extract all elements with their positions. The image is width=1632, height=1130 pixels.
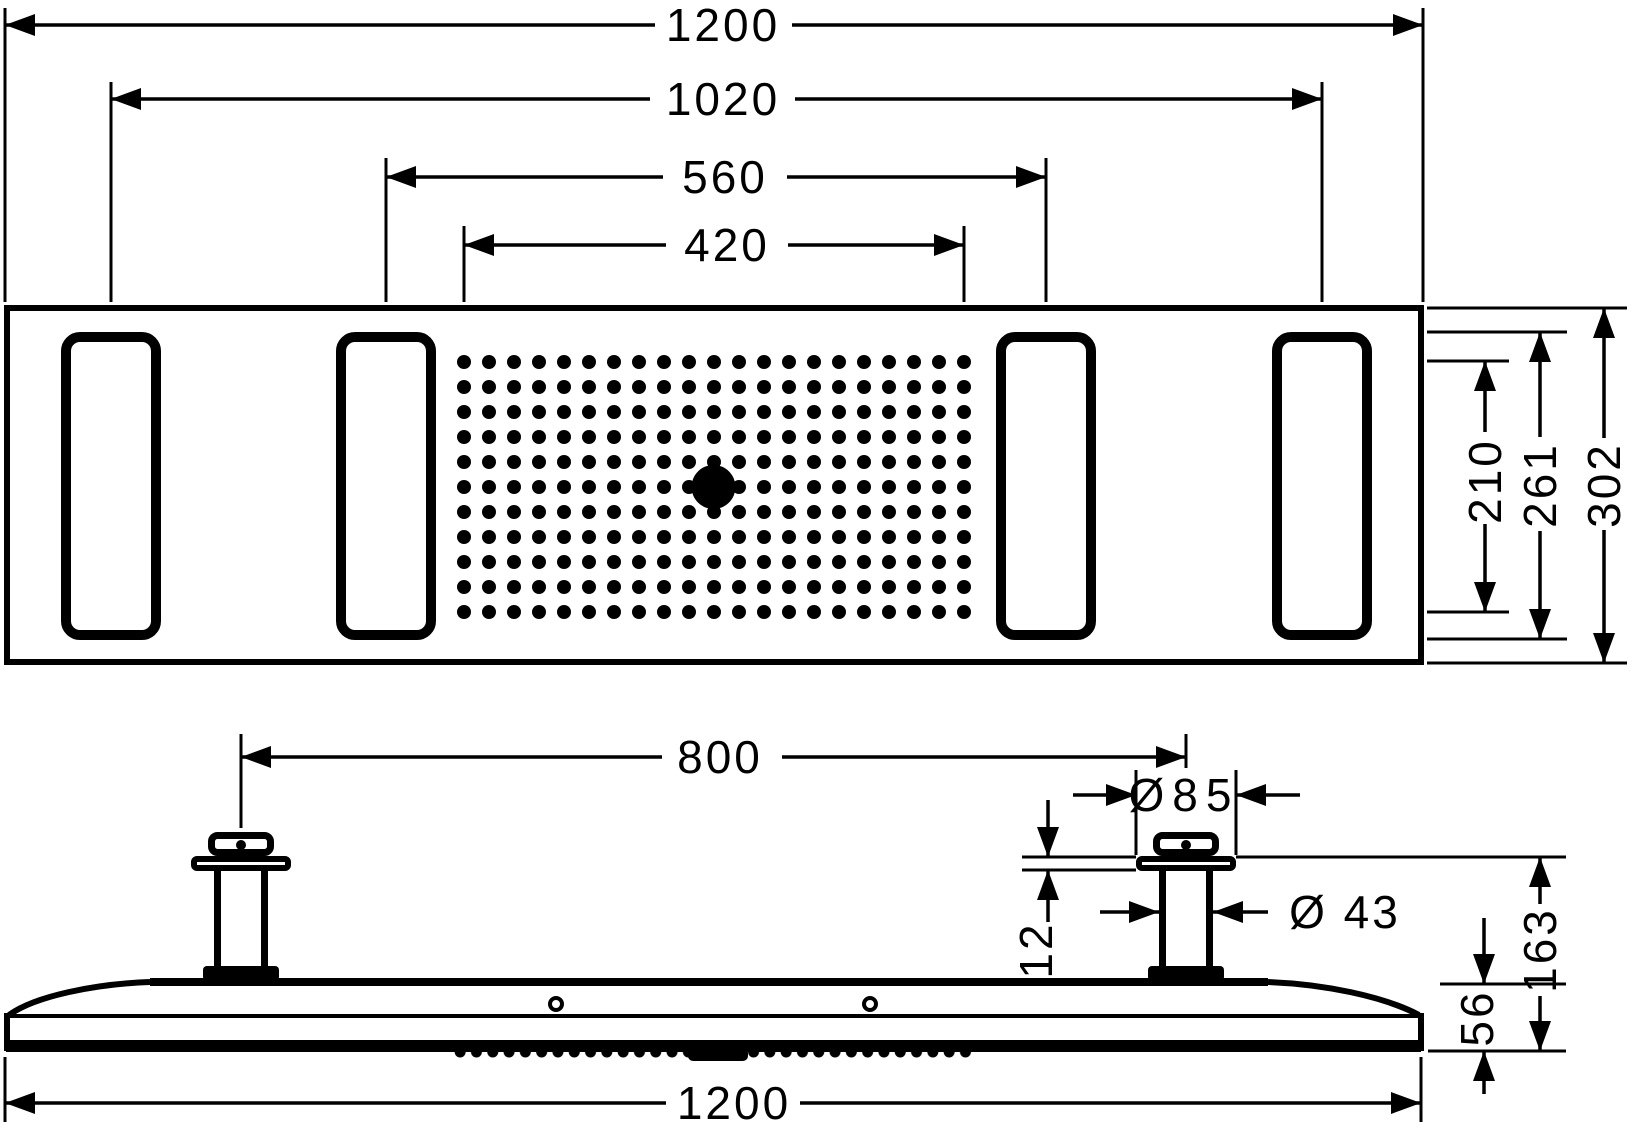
dim-lamp-length: 261 bbox=[1514, 332, 1566, 639]
connector-base bbox=[203, 966, 279, 981]
dim-connector-span: 800 bbox=[241, 731, 1186, 828]
service-hole-left bbox=[550, 998, 562, 1010]
center-nozzle bbox=[692, 465, 736, 509]
dim-label: 1200 bbox=[666, 0, 780, 51]
dim-label: 420 bbox=[684, 219, 770, 271]
lamp-window-2 bbox=[341, 337, 431, 635]
connector-escutcheon bbox=[1139, 859, 1233, 868]
dim-label: 12 bbox=[1010, 921, 1062, 978]
dim-pipe-diameter: Ø 43 bbox=[1100, 886, 1401, 938]
dim-spray-field-width: 420 bbox=[464, 219, 964, 302]
body-right-end-curve bbox=[1268, 982, 1419, 1015]
dim-spray-field-depth: 210 bbox=[1459, 361, 1511, 612]
lamp-window-1 bbox=[66, 337, 156, 635]
dim-label: 1200 bbox=[677, 1077, 791, 1129]
center-nozzle-side bbox=[688, 1048, 748, 1061]
technical-drawing-page: 1200 1020 560 420 210 261 bbox=[0, 0, 1632, 1130]
service-hole-right bbox=[864, 998, 876, 1010]
dim-label: 261 bbox=[1514, 442, 1566, 528]
dim-overall-width-side: 1200 bbox=[5, 1057, 1421, 1129]
dim-label: 56 bbox=[1451, 989, 1503, 1046]
cap-hole bbox=[1181, 840, 1191, 850]
cap-hole bbox=[236, 840, 246, 850]
dim-label: 302 bbox=[1578, 442, 1630, 528]
dim-label: Ø 43 bbox=[1289, 886, 1401, 938]
top-view bbox=[7, 308, 1421, 662]
dim-label: 210 bbox=[1459, 438, 1511, 524]
dim-overall-depth: 302 bbox=[1578, 308, 1630, 663]
connector-escutcheon bbox=[194, 859, 288, 868]
dim-label: 800 bbox=[677, 731, 763, 783]
side-view bbox=[6, 836, 1421, 1062]
ceiling-connector-left bbox=[194, 836, 288, 982]
dim-total-height: 163 bbox=[1236, 857, 1566, 1051]
showerhead-dimension-drawing: 1200 1020 560 420 210 261 bbox=[0, 0, 1632, 1130]
connector-base bbox=[1148, 966, 1224, 981]
lamp-window-3 bbox=[1001, 337, 1091, 635]
body-left-end-curve bbox=[9, 982, 150, 1015]
dim-label: Ø85 bbox=[1129, 769, 1240, 821]
lamp-window-4 bbox=[1277, 337, 1367, 635]
dim-label: 560 bbox=[682, 151, 768, 203]
ceiling-connector-right bbox=[1139, 836, 1233, 982]
dim-label: 1020 bbox=[666, 73, 780, 125]
dim-escutcheon-height: 12 bbox=[1010, 800, 1136, 979]
dim-label: 163 bbox=[1514, 907, 1566, 993]
body-top-surface bbox=[150, 978, 1268, 986]
